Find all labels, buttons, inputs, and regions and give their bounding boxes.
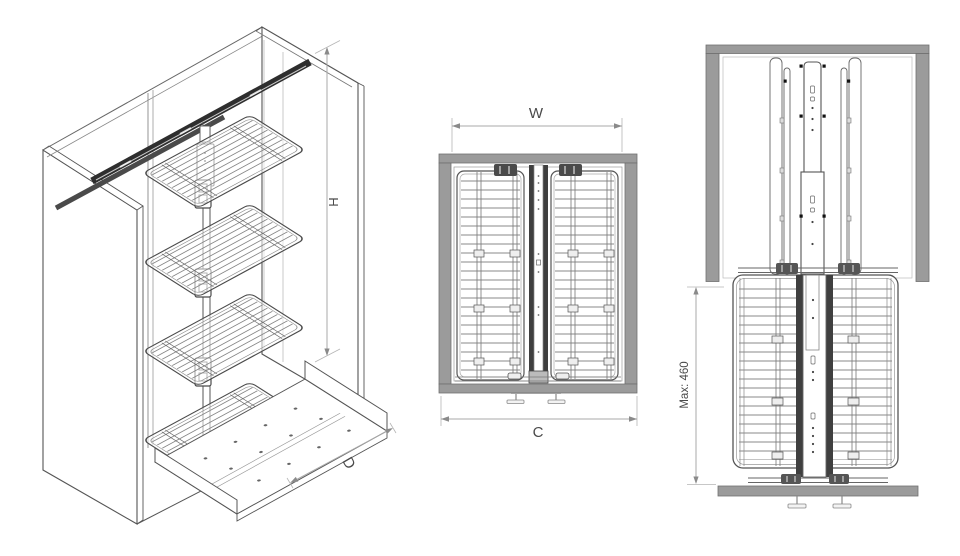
- side-view: Max: 460: [679, 45, 929, 508]
- technical-drawing-page: H D W: [0, 0, 960, 556]
- cabinet-left-panel: [43, 146, 143, 524]
- front-center-rail: [529, 165, 548, 383]
- dim-h-label: H: [326, 197, 341, 206]
- dim-width: W: [452, 105, 622, 152]
- dim-max-label: Max: 460: [679, 361, 691, 408]
- front-floor-bracket: [507, 394, 565, 404]
- side-floor-bar: [718, 486, 918, 496]
- front-cabinet-top: [439, 154, 637, 163]
- side-right-wall: [916, 54, 929, 282]
- dim-c-label: C: [533, 424, 544, 441]
- pullout-larder-technical-drawing: H D W: [0, 0, 960, 556]
- side-left-wall: [706, 54, 719, 282]
- front-left-basket: [457, 171, 524, 380]
- dim-w-label: W: [529, 105, 544, 122]
- front-right-wall: [625, 163, 637, 384]
- side-cabinet-top: [706, 45, 929, 54]
- front-right-basket: [551, 171, 618, 380]
- side-column-lower: [796, 275, 833, 477]
- side-center-column: [801, 62, 824, 274]
- front-view: W: [439, 105, 637, 441]
- side-floor-bracket: [788, 496, 851, 508]
- dim-cabinet-width: C: [441, 396, 637, 441]
- front-bottom-shelf: [439, 384, 637, 393]
- front-left-wall: [439, 163, 451, 384]
- iso-view: H D: [43, 27, 396, 524]
- dim-max-drop: Max: 460: [679, 287, 724, 485]
